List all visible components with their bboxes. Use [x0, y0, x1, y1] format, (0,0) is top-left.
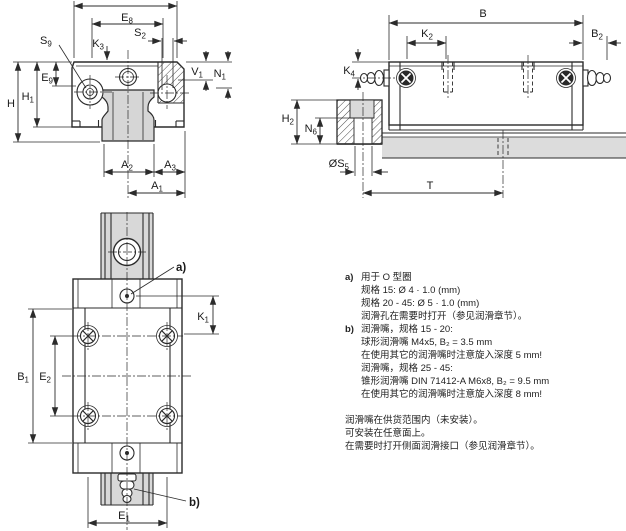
dim-label-k3: K3	[92, 38, 104, 52]
end-cap-screw-right	[557, 69, 576, 88]
note-line: a)用于 O 型圈	[345, 271, 623, 284]
note-line: 润滑孔在需要时打开（参见润滑章节）。	[345, 310, 623, 323]
callout-label-b: b)	[189, 497, 200, 509]
cross-section-view: E8 S9 K3 S2 V1 N1 H H1 E9 A2 A3 A1	[7, 1, 232, 198]
rail-mounting-section	[337, 92, 382, 198]
dim-label-e1: E1	[118, 510, 130, 524]
dim-label-v1: V1	[191, 66, 203, 80]
note-line: 锥形润滑嘴 DIN 71412-A M6x8, B₂ = 9.5 mm	[345, 375, 623, 388]
dim-label-s2: S2	[134, 27, 146, 41]
note-line: 球形润滑嘴 M4x5, B₂ = 3.5 mm	[345, 336, 623, 349]
dim-label-b2: B2	[591, 28, 603, 42]
dim-label-n1: N1	[214, 68, 227, 82]
note-line: 规格 20 - 45: Ø 5 · 1.0 (mm)	[345, 297, 623, 310]
grease-nipple-right	[583, 70, 611, 86]
note-line: 可安装在任意面上。	[345, 427, 623, 440]
dim-label-b1: B1	[17, 371, 29, 385]
dim-label-h2: H2	[282, 113, 295, 127]
dim-label-k4: K4	[343, 65, 355, 79]
callout-label-a: a)	[176, 262, 186, 274]
note-line: 规格 15: Ø 4 · 1.0 (mm)	[345, 284, 623, 297]
note-line: b)润滑嘴，规格 15 - 20:	[345, 323, 623, 336]
note-line: 润滑嘴，规格 25 - 45:	[345, 362, 623, 375]
dim-label-t: T	[427, 180, 434, 192]
carriage-body-side	[389, 62, 583, 130]
dim-label-a3: A3	[164, 159, 176, 173]
lubrication-notes: a)用于 O 型圈 规格 15: Ø 4 · 1.0 (mm) 规格 20 - …	[345, 271, 623, 453]
technical-drawing-page: E8 S9 K3 S2 V1 N1 H H1 E9 A2 A3 A1	[0, 0, 626, 531]
dim-label-k2: K2	[421, 28, 433, 42]
end-cap-screw-left	[397, 69, 416, 88]
top-view: a) b) K1 B1 E2 E1	[17, 212, 219, 530]
dim-label-n6: N6	[305, 123, 318, 137]
dim-label-h: H	[7, 98, 15, 110]
dim-label-a2: A2	[121, 159, 133, 173]
dim-label-k1: K1	[197, 311, 209, 325]
note-line: 在使用其它的润滑嘴时注意旋入深度 8 mm!	[345, 388, 623, 401]
note-line: 润滑嘴在供货范围内（未安装）。	[345, 414, 623, 427]
rail-side	[382, 130, 626, 198]
dim-label-e2: E2	[39, 371, 51, 385]
note-line: 在需要时打开侧面润滑接口（参见润滑章节）。	[345, 440, 623, 453]
dim-label-e8: E8	[121, 12, 133, 26]
dim-label-a1: A1	[151, 180, 163, 194]
dim-label-s5: ØS5	[329, 158, 350, 172]
dim-label-b: B	[479, 8, 486, 20]
note-line: 在使用其它的润滑嘴时注意旋入深度 5 mm!	[345, 349, 623, 362]
dim-label-s9: S9	[40, 35, 52, 49]
dim-label-e9: E9	[41, 72, 53, 86]
side-view: B K2 B2 K4 H2 N6 ØS5 T	[282, 8, 626, 198]
dim-label-h1: H1	[22, 91, 35, 105]
